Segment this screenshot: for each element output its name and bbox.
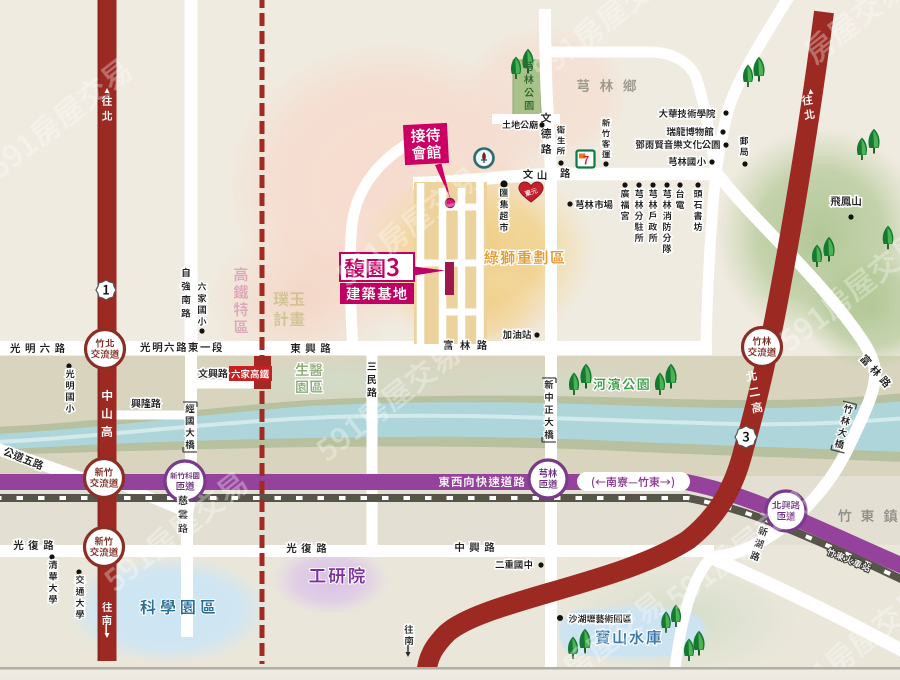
svg-text:匝道: 匝道 — [538, 477, 558, 491]
svg-text:清華大學: 清華大學 — [48, 558, 58, 606]
svg-text:光 復 路: 光 復 路 — [286, 541, 327, 556]
svg-text:匯集超市: 匯集超市 — [499, 186, 509, 234]
svg-text:光 明 六 路: 光 明 六 路 — [10, 341, 66, 356]
svg-text:新中正大橋: 新中正大橋 — [544, 377, 554, 441]
svg-text:山: 山 — [537, 168, 548, 183]
svg-text:鄧雨賢音樂文化公園: 鄧雨賢音樂文化公園 — [635, 137, 721, 151]
svg-text:芎林戶政所: 芎林戶政所 — [648, 187, 658, 244]
svg-text:郵局: 郵局 — [739, 134, 749, 158]
svg-text:瑞龍博物館: 瑞龍博物館 — [666, 124, 714, 138]
svg-text:自強南路: 自強南路 — [181, 265, 191, 320]
svg-text:工研院: 工研院 — [309, 563, 368, 588]
svg-text:東西向快速道路: 東西向快速道路 — [438, 474, 526, 490]
svg-text:光明六路東一段: 光明六路東一段 — [140, 340, 224, 355]
svg-text:往南: 往南 — [404, 622, 414, 647]
svg-text:7: 7 — [583, 153, 590, 169]
svg-text:芎林分駐所: 芎林分駐所 — [634, 187, 643, 244]
svg-text:光 復 路: 光 復 路 — [13, 538, 54, 553]
svg-text:大華技術學院: 大華技術學院 — [658, 106, 716, 120]
svg-text:交通大學: 交通大學 — [74, 573, 85, 621]
svg-text:交流道: 交流道 — [91, 347, 120, 361]
svg-text:中山高: 中山高 — [101, 387, 113, 440]
svg-text:光明國小: 光明國小 — [65, 367, 74, 415]
svg-text:文: 文 — [523, 167, 534, 182]
svg-text:芎林國小: 芎林國小 — [668, 154, 707, 168]
svg-text:土地公廟: 土地公廟 — [502, 118, 538, 131]
svg-text:飛鳳山: 飛鳳山 — [830, 194, 862, 209]
svg-text:路: 路 — [560, 166, 571, 181]
svg-text:1: 1 — [102, 280, 110, 299]
svg-text:台電: 台電 — [675, 187, 684, 211]
svg-text:芎 林 鄉: 芎 林 鄉 — [576, 76, 639, 96]
svg-text:二重國中: 二重國中 — [495, 557, 533, 571]
svg-text:六家高鐵: 六家高鐵 — [231, 367, 270, 381]
svg-text:文德路: 文德路 — [541, 110, 553, 157]
svg-text:園區: 園區 — [295, 377, 323, 397]
svg-text:會館: 會館 — [411, 141, 442, 164]
svg-text:竹 東 鎮: 竹 東 鎮 — [837, 506, 900, 526]
svg-text:廣福宮: 廣福宮 — [620, 187, 630, 222]
svg-text:3: 3 — [742, 427, 750, 446]
svg-text:加油站: 加油站 — [503, 327, 532, 341]
svg-text:六家國小: 六家國小 — [197, 280, 207, 328]
svg-text:芎林市場: 芎林市場 — [575, 197, 613, 211]
svg-text:頭石書坊: 頭石書坊 — [692, 187, 702, 233]
svg-text:科學園區: 科學園區 — [140, 594, 220, 618]
svg-text:文興路: 文興路 — [198, 365, 229, 380]
svg-text:(←南寮—竹東→): (←南寮—竹東→) — [591, 474, 675, 490]
svg-text:東 興 路: 東 興 路 — [290, 341, 331, 356]
svg-text:經國大橋: 經國大橋 — [185, 401, 195, 451]
svg-text:往南: 往南 — [102, 600, 113, 628]
svg-text:交流道: 交流道 — [748, 345, 777, 359]
svg-text:芎林消防分隊: 芎林消防分隊 — [662, 187, 672, 255]
svg-text:綠獅重劃區: 綠獅重劃區 — [484, 247, 567, 268]
svg-text:計畫: 計畫 — [273, 306, 305, 330]
svg-text:河濱公園: 河濱公園 — [593, 374, 651, 393]
svg-text:衛生所: 衛生所 — [557, 124, 566, 157]
svg-text:高鐵特區: 高鐵特區 — [233, 264, 249, 338]
svg-text:中 興 路: 中 興 路 — [454, 540, 495, 555]
svg-text:興隆路: 興隆路 — [131, 395, 162, 410]
svg-text:新竹客運: 新竹客運 — [602, 117, 611, 161]
svg-text:交流道: 交流道 — [90, 476, 119, 490]
